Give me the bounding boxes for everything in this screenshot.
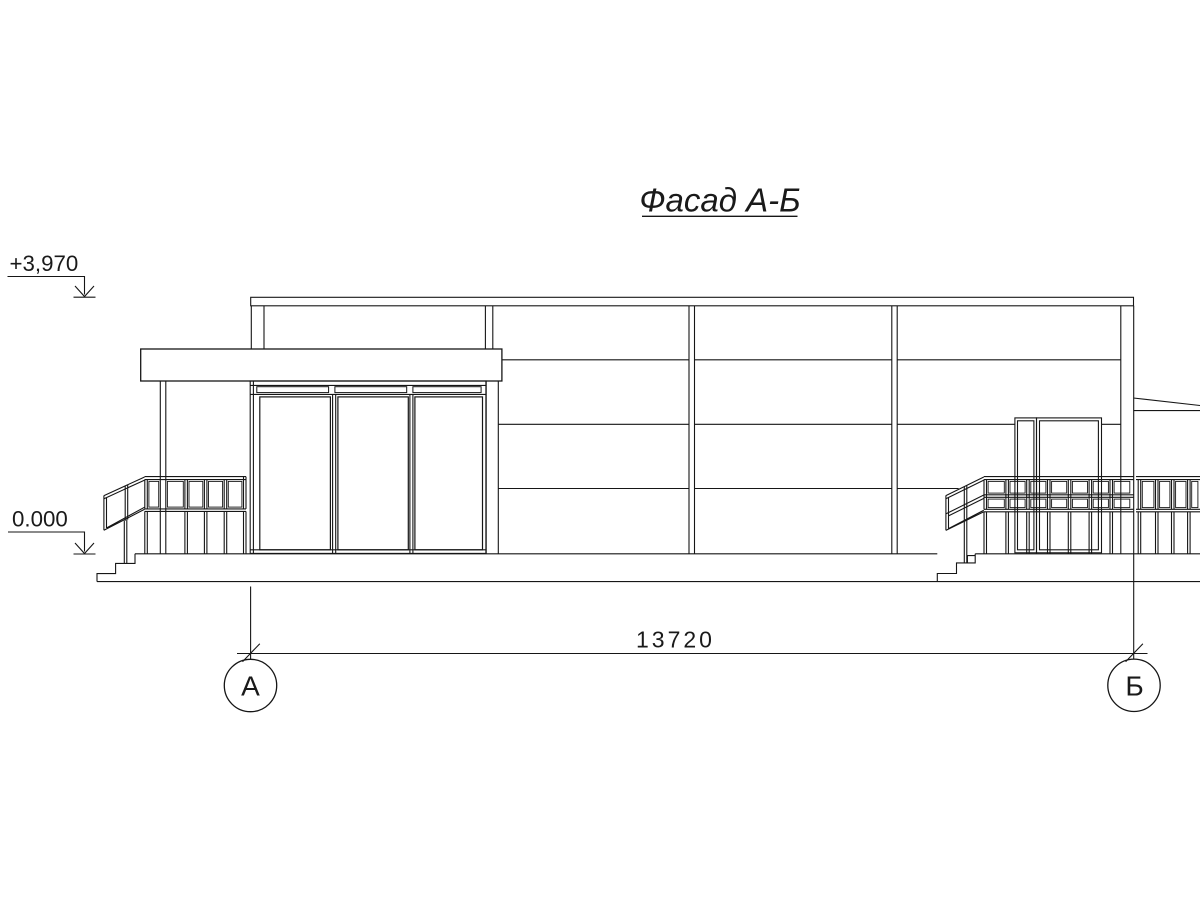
- svg-text:А: А: [241, 671, 260, 702]
- svg-text:+3,970: +3,970: [10, 251, 79, 276]
- svg-text:13720: 13720: [636, 627, 715, 653]
- svg-text:Фасад А-Б: Фасад А-Б: [639, 182, 800, 219]
- svg-text:0.000: 0.000: [12, 506, 68, 531]
- svg-text:Б: Б: [1125, 670, 1143, 701]
